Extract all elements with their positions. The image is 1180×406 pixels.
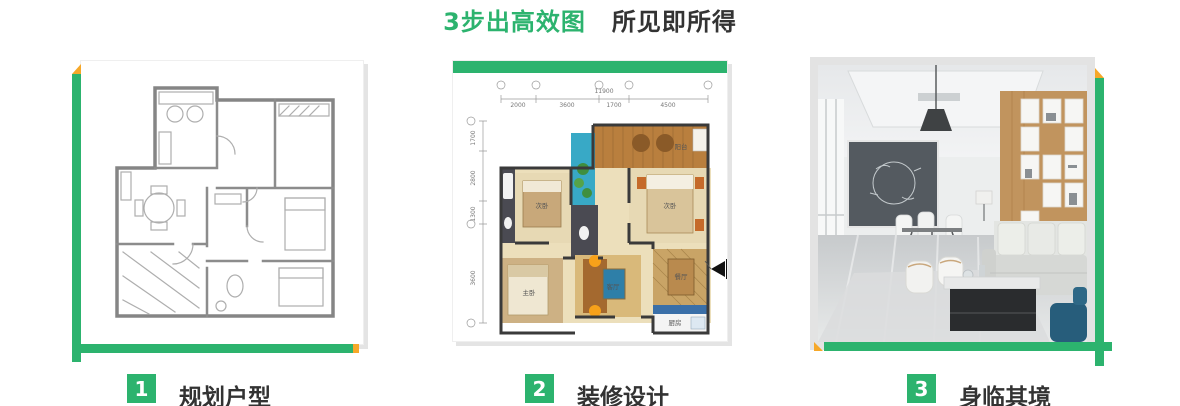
- green-accent-bottom: [72, 344, 353, 353]
- room-label-bedroom-left: 次卧: [536, 201, 550, 210]
- render-blue-stool: [1073, 287, 1087, 305]
- orange-corner-icon: [1095, 68, 1104, 78]
- sketch-floorplan-image: [81, 61, 363, 344]
- panel-color-floorplan: 11900 2000 3600 1700 4500 1700 2800 1300…: [452, 60, 728, 342]
- step-1-badge: 1: [127, 374, 156, 403]
- room-label-bedroom-right: 次卧: [664, 201, 678, 210]
- render-blue-stool: [1050, 303, 1087, 342]
- sketch-inner-walls: [117, 100, 333, 316]
- dim-top-4: 4500: [660, 102, 675, 109]
- room-label-kitchen: 厨房: [669, 318, 682, 327]
- step-1: 1 规划户型: [127, 374, 271, 406]
- step-3-badge: 3: [907, 374, 936, 403]
- color-floorplan-image: 11900 2000 3600 1700 4500 1700 2800 1300…: [453, 73, 727, 341]
- dim-left-3: 1300: [470, 206, 477, 221]
- render-bookshelf: [1000, 91, 1087, 241]
- sketch-outer-walls: [117, 88, 333, 316]
- dim-overall: 11900: [594, 88, 613, 95]
- step-3-label: 身临其境: [959, 386, 1051, 406]
- section-title-rest: 所见即所得: [586, 8, 737, 36]
- green-accent-right: [1095, 78, 1104, 366]
- interior-render-image: [818, 65, 1087, 342]
- dim-left-4: 3600: [470, 270, 477, 285]
- room-label-balcony: 阳台: [675, 142, 688, 151]
- green-accent-top: [453, 61, 727, 73]
- sketch-furniture: [121, 92, 329, 314]
- dim-left-1: 1700: [470, 130, 477, 145]
- dim-top-3: 1700: [606, 102, 621, 109]
- orange-corner-icon: [814, 342, 823, 351]
- step-1-label: 规划户型: [179, 386, 271, 406]
- green-accent-bottom: [824, 342, 1112, 351]
- dim-top-2: 3600: [559, 102, 574, 109]
- panel-sketch-floorplan: [80, 60, 364, 345]
- step-2-badge: 2: [525, 374, 554, 403]
- orange-corner-icon: [72, 64, 81, 74]
- room-label-master: 主卧: [523, 288, 537, 297]
- step-2: 2 装修设计: [525, 374, 669, 406]
- section-title-highlight: 3步出高效图: [443, 8, 586, 36]
- room-label-living: 客厅: [607, 282, 621, 291]
- dim-left-2: 2800: [470, 170, 477, 185]
- dim-top-1: 2000: [510, 102, 525, 109]
- step-3: 3 身临其境: [907, 374, 1051, 406]
- panel-render-photo: [810, 57, 1095, 350]
- orange-corner-icon: [353, 344, 359, 353]
- step-2-label: 装修设计: [577, 386, 669, 406]
- room-label-dining: 餐厅: [675, 272, 689, 281]
- page: 3步出高效图所见即所得: [0, 0, 1180, 406]
- green-accent-left: [72, 74, 81, 362]
- plan-rooms: [501, 125, 727, 333]
- section-title: 3步出高效图所见即所得: [0, 2, 1180, 37]
